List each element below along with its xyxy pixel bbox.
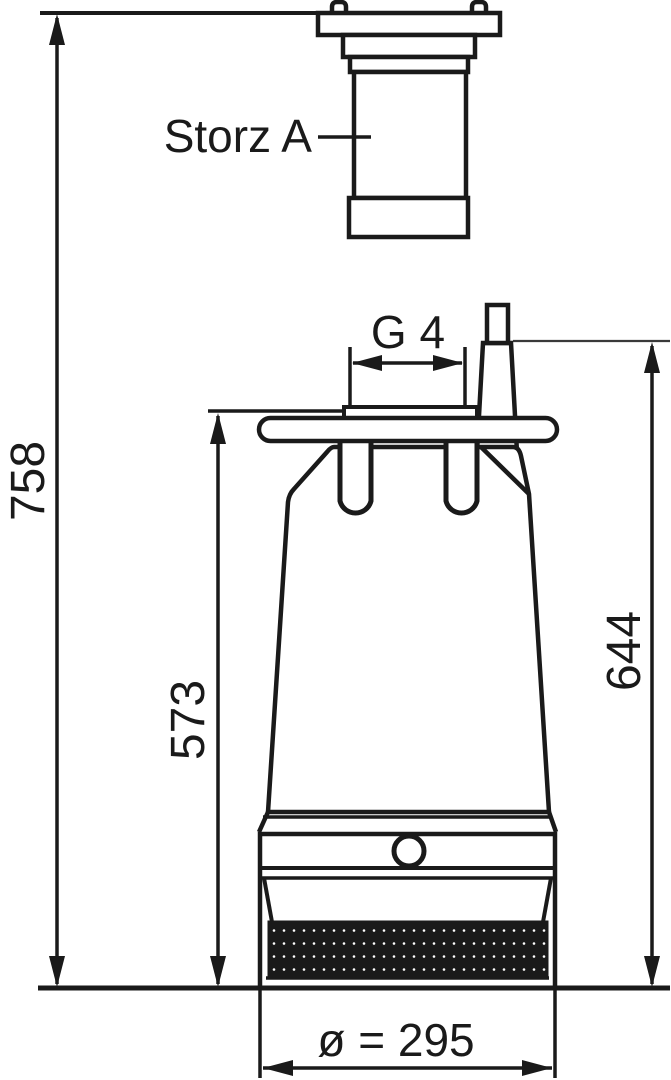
drain-plug-circle <box>394 836 424 866</box>
drawing-canvas: 758 573 644 G 4 Storz A <box>0 0 671 1080</box>
coupling-flange <box>318 13 500 35</box>
arrowhead-left-icon <box>263 1060 293 1076</box>
arrowhead-down-icon <box>210 956 226 987</box>
coupling-sleeve <box>349 198 468 237</box>
coupling-neck <box>343 35 475 57</box>
storz-coupling <box>318 2 500 237</box>
carry-handle-bar <box>259 418 557 441</box>
volute-right-slant <box>543 878 551 922</box>
dimension-base-diameter: ø = 295 <box>260 988 555 1078</box>
pump-base-casing <box>258 812 557 988</box>
diameter-text: ø = 295 <box>317 1014 474 1066</box>
arrowhead-up-icon <box>644 342 660 373</box>
coupling-label-text: Storz A <box>164 110 313 162</box>
pump-dimension-drawing: 758 573 644 G 4 Storz A <box>0 0 671 1080</box>
hook-left <box>340 440 371 513</box>
arrowhead-right-icon <box>522 1060 552 1076</box>
suction-strainer <box>269 922 547 978</box>
hook-right <box>446 440 477 513</box>
dimension-text-758: 758 <box>2 441 55 521</box>
pump-body <box>268 447 549 812</box>
dimension-text-573: 573 <box>162 680 215 760</box>
arrowhead-down-icon <box>49 956 65 987</box>
arrowhead-up-icon <box>210 413 226 444</box>
dimension-overall-height: 758 <box>2 14 65 987</box>
coupling-barrel <box>354 72 466 198</box>
arrowhead-up-icon <box>49 14 65 45</box>
dimension-thread-g4: G 4 <box>350 306 465 407</box>
dimension-text-644: 644 <box>598 611 651 691</box>
volute-left-slant <box>264 878 272 922</box>
storz-callout: Storz A <box>164 110 371 162</box>
vent-pipe-tip <box>487 305 508 343</box>
arrowhead-down-icon <box>644 956 660 987</box>
thread-size-text: G 4 <box>371 306 445 358</box>
